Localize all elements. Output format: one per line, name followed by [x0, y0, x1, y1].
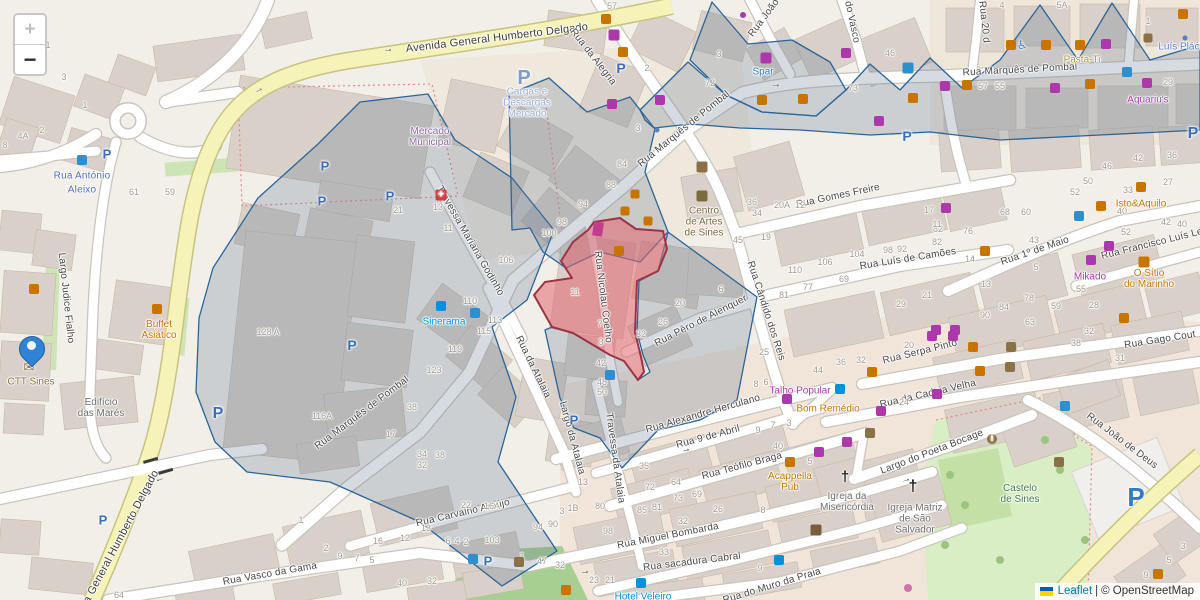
marker-pin-dot	[27, 341, 36, 350]
leaflet-link[interactable]: Leaflet	[1058, 585, 1093, 597]
openstreetmap-link[interactable]: © OpenStreetMap	[1101, 585, 1194, 597]
map-marker[interactable]	[19, 336, 43, 370]
attribution-separator: |	[1095, 585, 1098, 597]
zoom-control: + −	[13, 13, 47, 76]
zoom-in-button[interactable]: +	[15, 15, 45, 45]
attribution-bar: Leaflet | © OpenStreetMap	[1035, 583, 1200, 600]
map-application: Avenida General Humberto DelgadoAvenida …	[0, 0, 1200, 600]
ukraine-flag-icon	[1040, 587, 1053, 596]
zoom-out-button[interactable]: −	[15, 45, 45, 74]
map-canvas[interactable]	[0, 0, 1200, 600]
